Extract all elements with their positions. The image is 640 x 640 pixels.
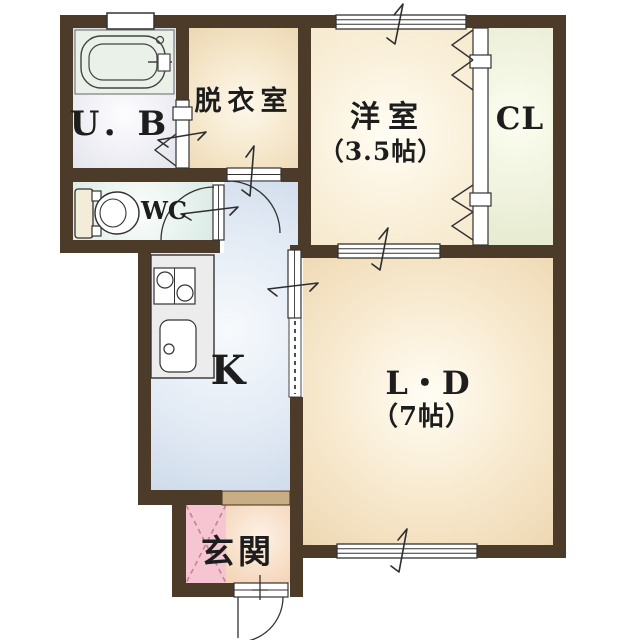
- floor-plan-canvas: U．B 脱衣室 洋室 （3.5帖） CL WC K L・D （7帖） 玄関: [0, 0, 640, 640]
- label-closet: CL: [496, 101, 544, 137]
- wall-wc-bottom: [60, 240, 220, 253]
- wall-wc-top: [60, 168, 230, 182]
- label-western-room: 洋室: [350, 100, 426, 135]
- wall-hall-top-right: [281, 168, 298, 182]
- wall-kitchen-left: [138, 253, 151, 503]
- bathtub-icon: [75, 30, 174, 94]
- label-entrance: 玄関: [201, 532, 275, 571]
- window-unit-bath: [107, 13, 154, 29]
- wall-ub-right-upper: [176, 28, 189, 103]
- sliding-door-ld: [288, 250, 301, 397]
- sink-icon: [160, 320, 196, 372]
- label-unit-bath: U．B: [70, 104, 168, 144]
- label-western-size: （3.5帖）: [319, 137, 444, 166]
- kitchen-counter: [151, 255, 214, 378]
- window-western-ld: [338, 244, 440, 258]
- label-toilet: WC: [140, 196, 187, 225]
- wall-ld-left: [290, 397, 303, 597]
- window-ld-bottom: [337, 544, 477, 558]
- stove-icon: [154, 268, 195, 304]
- label-kitchen: K: [211, 347, 247, 394]
- label-dressing-room: 脱衣室: [195, 85, 294, 117]
- entrance-door: [234, 575, 288, 640]
- wall-western-left: [298, 28, 311, 252]
- floor-plan: U．B 脱衣室 洋室 （3.5帖） CL WC K L・D （7帖） 玄関: [0, 0, 640, 640]
- toilet-icon: [75, 189, 139, 238]
- label-ld-size: （7帖）: [372, 402, 472, 432]
- label-living-dining: L・D: [385, 364, 470, 402]
- wall-right: [553, 15, 566, 558]
- wall-entrance-topleft: [138, 490, 222, 505]
- wall-entrance-bottom: [172, 583, 238, 597]
- entrance-step: [222, 491, 290, 505]
